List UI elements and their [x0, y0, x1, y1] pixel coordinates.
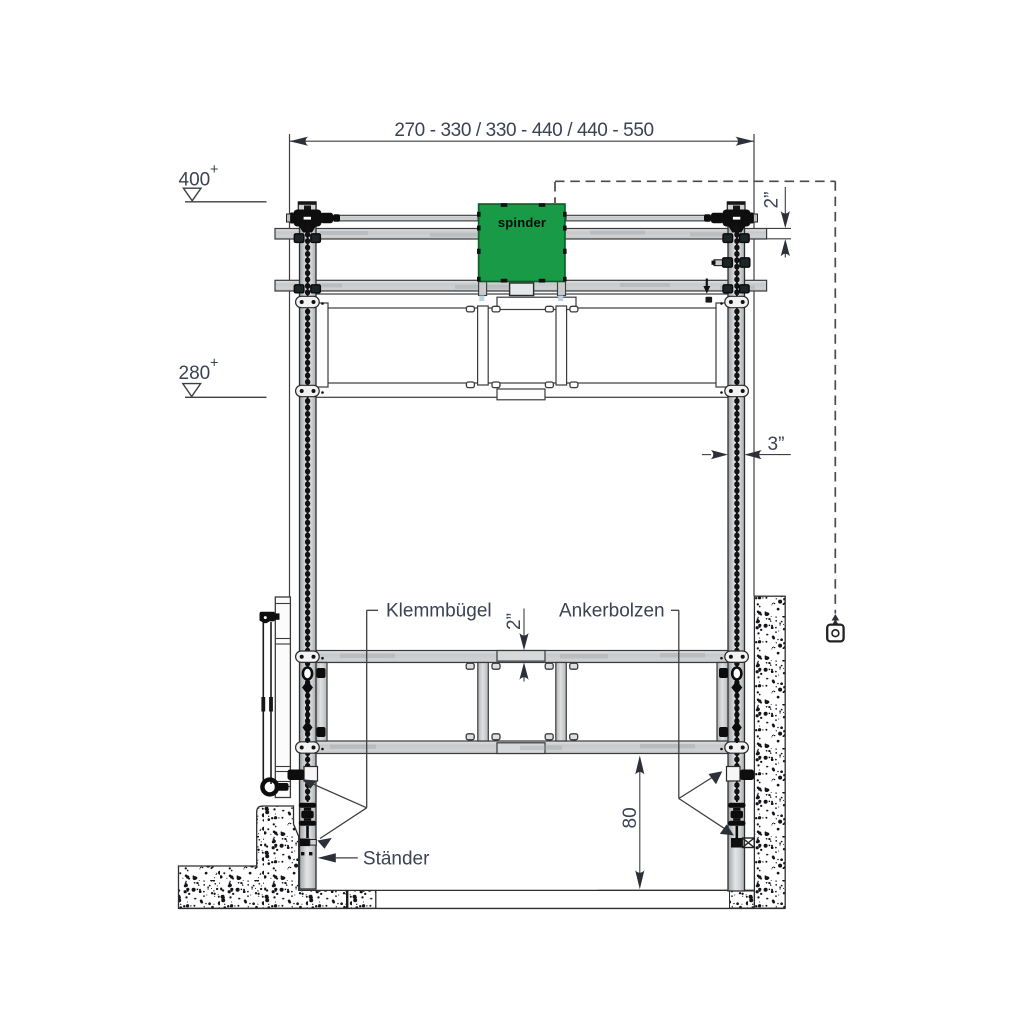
svg-text:Ankerbolzen: Ankerbolzen: [559, 601, 665, 622]
svg-text:+: +: [210, 355, 218, 371]
svg-text:400: 400: [179, 170, 211, 191]
svg-text:270 - 330 / 330 - 440 / 440 -: 270 - 330 / 330 - 440 / 440 - 550: [394, 120, 653, 141]
svg-text:80: 80: [620, 807, 641, 828]
svg-text:Klemmbügel: Klemmbügel: [386, 601, 492, 622]
svg-text:2”: 2”: [504, 613, 525, 630]
svg-text:+: +: [210, 162, 218, 178]
svg-text:Ständer: Ständer: [363, 848, 430, 869]
svg-text:280: 280: [179, 363, 211, 384]
svg-text:spinder: spinder: [498, 215, 546, 230]
svg-text:3”: 3”: [768, 434, 785, 455]
svg-text:2”: 2”: [762, 192, 783, 209]
